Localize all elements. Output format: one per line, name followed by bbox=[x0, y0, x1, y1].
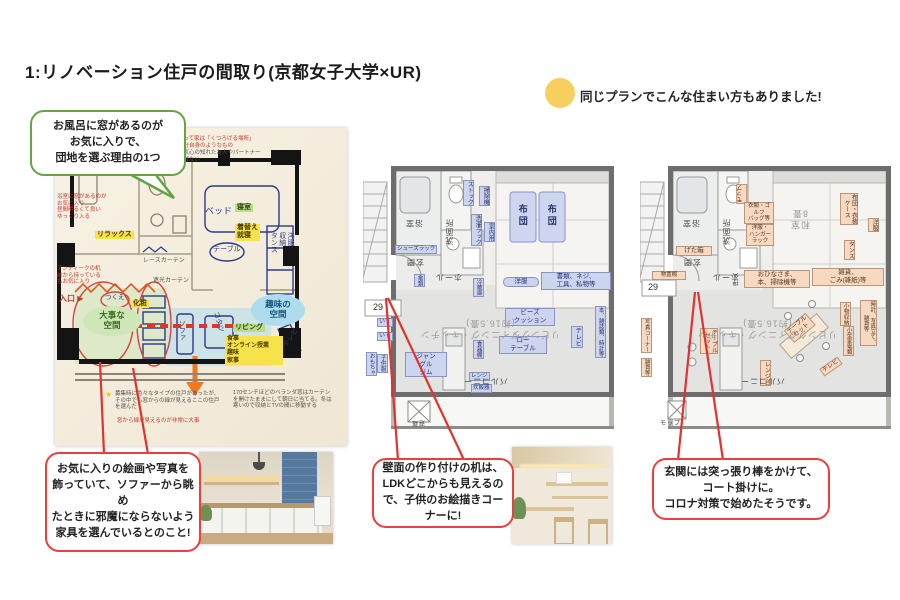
plan-label: 趣味の 空間 bbox=[251, 294, 305, 326]
plan-label: おもちゃ bbox=[366, 352, 377, 376]
callout-wall-desk: 壁面の作り付けの机は、 LDKどこからも見えるの で、子供のお絵描きコー ナーに… bbox=[372, 458, 514, 528]
plan-label: レースカーテン bbox=[143, 258, 185, 265]
plan-label: 浴室 bbox=[405, 218, 423, 228]
plan-label: ★ bbox=[105, 390, 112, 400]
plan-label: 洗面所 bbox=[445, 218, 455, 245]
floorplan-layout-2: ストック掃除機洗濯ラック室内用布団布団浴室洗面所シューズラック玄関ホール傘類29… bbox=[363, 160, 616, 445]
plan-label: 遮光カーテン bbox=[153, 278, 189, 285]
plan-label: ホール bbox=[435, 272, 462, 282]
floorplan-layout-3: モップ衣類・ゴルフ バッグ等洋服・ ハンガー ラック浴室洗面所げた箱玄関物置棚ホ… bbox=[640, 160, 893, 445]
plan-label: 掃除機 bbox=[479, 186, 490, 206]
plan-label: 浴室 bbox=[682, 218, 700, 228]
kitchen-floor bbox=[199, 533, 333, 544]
kitchen-appliance bbox=[314, 496, 331, 526]
plan-label: リビングダイニング・キッチン (約16.5畳) bbox=[692, 318, 842, 340]
desk-plant bbox=[512, 497, 526, 519]
desk-stool-1 bbox=[554, 517, 574, 544]
plan-label: 窓から緑が見えるのが非常に大事 bbox=[117, 418, 199, 425]
plan-label: ストック bbox=[463, 180, 474, 206]
plan-label: 入口 ▶ bbox=[59, 294, 83, 304]
callout-entrance-rod: 玄関には突っ張り棒をかけて、 コート掛けに。 コロナ対策で始めたそうです。 bbox=[652, 458, 830, 520]
plan-label: ベッド bbox=[205, 206, 232, 217]
plan-label: 洋服 bbox=[868, 218, 879, 232]
plan-label: 玄関 bbox=[683, 257, 701, 267]
plan-label: いす bbox=[377, 332, 393, 341]
plan-label: ジャン グル ジム bbox=[405, 352, 447, 377]
page-title: 1:リノベーション住戸の間取り(京都女子大学×UR) bbox=[25, 58, 422, 83]
plan-label: 衣類・ゴルフ バッグ等 bbox=[744, 202, 774, 224]
desk-counter bbox=[518, 507, 574, 511]
plan-label: 洗面所 bbox=[722, 218, 732, 245]
plan-label: テーブル bbox=[213, 246, 241, 254]
plan-label: 和室 8畳 bbox=[790, 208, 810, 230]
plan-label: アンティークの机 前から持っている もお気に入り bbox=[57, 266, 101, 286]
plan-label: げた箱 bbox=[676, 246, 712, 256]
plan-label: 書類、ネジ、 工具、私物等 bbox=[541, 272, 611, 290]
slide: { "title": "1:リノベーション住戸の間取り(京都女子大学×UR)",… bbox=[0, 0, 900, 600]
plan-label: 時計、写真立て、 雑貨等 bbox=[860, 300, 877, 346]
plan-label: バルコニー bbox=[740, 376, 785, 386]
note-text: 同じプランでこんな住まい方もありました! bbox=[580, 86, 822, 105]
plan-label: 食事 オンライン授業 趣味 家事 bbox=[225, 336, 283, 365]
callout-artwork: お気に入りの絵画や写真を 飾っていて、ソファーから眺め たときに邪魔にならないよ… bbox=[45, 452, 201, 552]
plan-label: 雑貨、 ごみ(雑紙)等 bbox=[812, 268, 884, 286]
plan-label: シューズラック bbox=[395, 245, 437, 254]
kitchen-shelf bbox=[204, 482, 279, 485]
yellow-dot-icon bbox=[545, 78, 575, 108]
plan-label: 食器棚 bbox=[473, 340, 484, 359]
photo-wall-desk bbox=[512, 447, 612, 544]
plan-label: 物置棚 bbox=[652, 271, 686, 280]
plan-label: ソファ bbox=[177, 320, 185, 341]
plan-label: 布団 bbox=[546, 204, 557, 228]
plan-label: リビングダイニング・キッチン (約16.5畳) bbox=[415, 318, 565, 340]
plan-label: 子供服 bbox=[377, 354, 388, 373]
kitchen-cabinets bbox=[199, 508, 322, 534]
plan-label: 布団・衣装 ケース bbox=[840, 193, 858, 225]
plan-label: 布団 bbox=[517, 204, 528, 228]
plan-label: 本、雑誌類、時計等 bbox=[595, 306, 606, 358]
plan-label: リラックス bbox=[95, 231, 134, 239]
kitchen-plant bbox=[200, 505, 212, 521]
plan-label: 寝室 bbox=[235, 204, 253, 212]
plan-label: 29 bbox=[373, 302, 383, 313]
desk-light-strip bbox=[520, 464, 604, 468]
plan-label: 避難 bbox=[411, 418, 425, 425]
desk-box bbox=[556, 472, 572, 484]
plan-label: つくえ bbox=[105, 294, 125, 302]
plan-label: 浴室に窓があるのが お気に入り 昼間明るくて良い ゆっくり入る bbox=[57, 194, 107, 220]
plan-label: 洗濯ラック bbox=[471, 214, 482, 246]
desk-stool-2 bbox=[588, 519, 608, 544]
plan-label: 写真コーナー bbox=[641, 318, 652, 353]
plan-label: 29 bbox=[648, 282, 658, 293]
plan-label: 玄関 bbox=[406, 257, 424, 267]
callout-bath-window: お風呂に窓があるのが お気に入りで、 団地を選ぶ理由の1つ bbox=[30, 110, 186, 176]
plan-label: 大事な 空間 bbox=[83, 306, 141, 336]
photo-kitchen bbox=[199, 452, 333, 544]
plan-label: タンス bbox=[844, 240, 855, 260]
plan-label: 募集時に色々なタイプの住戸があったが、その中でも窓からの緑が見えるここの住戸を選… bbox=[115, 391, 223, 411]
plan-label: リビング bbox=[233, 324, 265, 332]
plan-label: 170センチほどのベランダ窓はカーテンを開けたままにして朝日に当てる。冬は寒いの… bbox=[233, 390, 333, 410]
plan-label: 洋服 収納 タンス bbox=[269, 232, 294, 253]
plan-label: 小型家電類 bbox=[843, 326, 854, 356]
plan-label: 冷蔵庫 bbox=[473, 278, 484, 297]
plan-label: おひなさま、 本、掃除機等 bbox=[744, 270, 810, 288]
plan-label: 洋服 bbox=[503, 277, 539, 287]
desk-shelf-2 bbox=[552, 496, 608, 500]
plan-label: いす bbox=[377, 318, 393, 327]
plan-label: 洋服・ ハンガー ラック bbox=[746, 224, 774, 246]
plan-label: モップ bbox=[660, 421, 681, 428]
plan-label: 傘類 bbox=[414, 274, 425, 287]
plan-label: 雑貨等 bbox=[641, 358, 652, 377]
plan-label: モップ bbox=[736, 184, 747, 204]
plan-label: 化粧 bbox=[131, 300, 149, 308]
plan-label: バルコニー bbox=[463, 376, 508, 386]
plan-label: 室内用 bbox=[484, 222, 495, 242]
plan-label: テレビ bbox=[571, 326, 583, 348]
plan-label: 着替え 就寝 bbox=[235, 224, 260, 241]
plan-label: 押入 bbox=[734, 272, 741, 286]
